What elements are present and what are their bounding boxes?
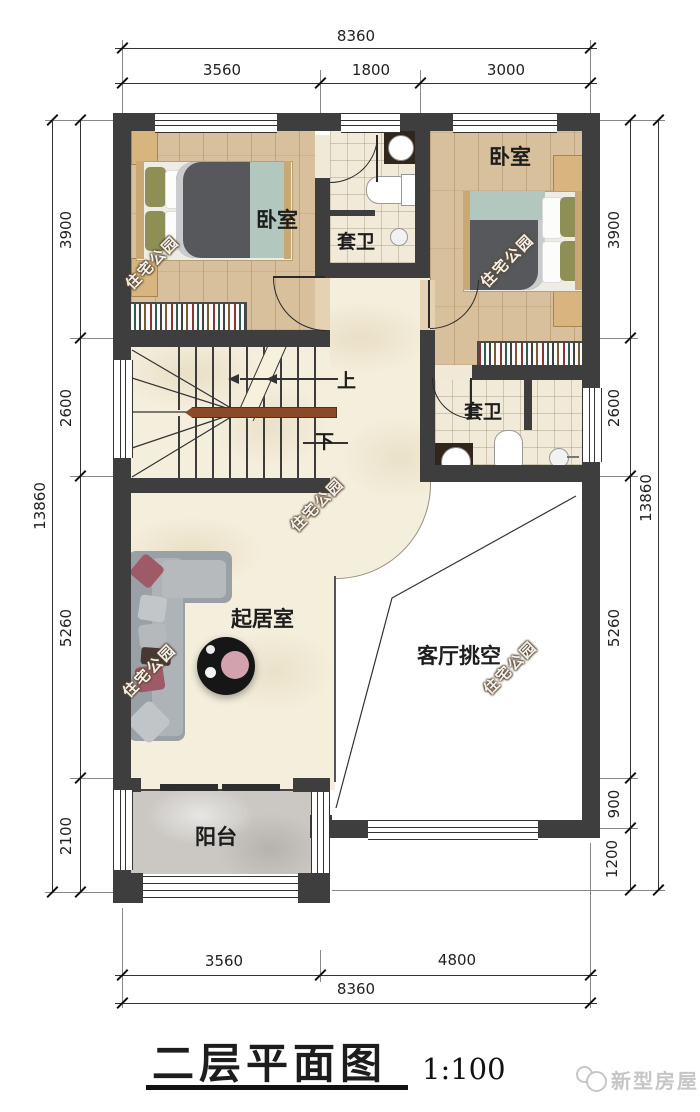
window-bedroom-left xyxy=(155,113,277,133)
door-leaf xyxy=(376,135,378,182)
pillow xyxy=(145,167,166,207)
bed-duvet xyxy=(176,162,250,258)
bath-partition-wall xyxy=(330,210,375,216)
shower-handle-icon xyxy=(567,456,579,458)
dim-right-seg-5: 1200 xyxy=(603,831,621,887)
dim-right-seg-3: 5260 xyxy=(605,600,623,656)
wall-right xyxy=(582,113,600,838)
room-label-void: 客厅挑空 xyxy=(417,640,501,670)
dim-line xyxy=(658,120,659,890)
dim-left-seg-2: 2600 xyxy=(57,380,75,436)
extension-line xyxy=(320,950,321,982)
dim-top-overall: 8360 xyxy=(330,27,382,45)
dim-top-seg-2: 1800 xyxy=(346,61,396,79)
door-leaf xyxy=(428,280,430,328)
wall-shower-partition xyxy=(524,380,532,430)
stair-up-arrow-line xyxy=(240,378,338,380)
dim-right-overall: 13860 xyxy=(637,470,655,526)
sofa-cushions xyxy=(162,560,226,598)
pillow xyxy=(137,594,167,623)
dim-line xyxy=(115,83,597,84)
sink-basin xyxy=(388,135,414,161)
nightstand xyxy=(131,129,158,165)
dim-top-seg-1: 3560 xyxy=(190,61,254,79)
window-stairs xyxy=(113,360,133,458)
dim-top-seg-3: 3000 xyxy=(479,61,533,79)
nightstand xyxy=(553,155,584,193)
bed-headboard xyxy=(575,191,582,290)
dim-right-seg-2: 2600 xyxy=(605,380,623,436)
room-label-bath-top: 套卫 xyxy=(337,227,375,254)
threshold-bath-top xyxy=(315,135,330,178)
window-bedroom-right xyxy=(453,113,557,133)
window-balcony-right xyxy=(311,792,330,873)
title-underline xyxy=(146,1085,408,1090)
brand-name: 新型房屋 xyxy=(611,1065,699,1094)
window-balcony-left xyxy=(113,790,133,870)
dim-right-seg-1: 3900 xyxy=(605,202,623,258)
stair-arrowhead-icon xyxy=(228,374,239,384)
extension-line xyxy=(590,843,591,1008)
wall-stairs-top xyxy=(113,330,330,347)
stair-handrail xyxy=(185,407,337,418)
nightstand xyxy=(553,290,584,327)
extension-line xyxy=(122,908,123,1008)
extension-line xyxy=(600,338,638,339)
dim-line xyxy=(115,975,597,976)
floor-drain-icon xyxy=(390,228,408,246)
stair-up-label: 上 xyxy=(337,366,356,393)
room-label-bath-right: 套卫 xyxy=(464,397,502,424)
balcony-corner-post xyxy=(298,873,330,903)
table-decor xyxy=(205,667,216,678)
window-bath-top xyxy=(341,113,400,133)
table-flowers xyxy=(221,651,249,679)
room-label-balcony: 阳台 xyxy=(195,821,237,851)
bed-footboard xyxy=(463,191,470,290)
balcony-railing xyxy=(143,876,298,898)
bed-runner xyxy=(470,191,545,220)
wall-bath-top-bottom xyxy=(315,263,420,278)
sliding-door-panel xyxy=(222,784,280,791)
wall-bath-bedroom-right xyxy=(415,131,430,278)
brand-logo-icon xyxy=(586,1071,607,1092)
stair-down-label: 下 xyxy=(315,427,334,454)
dim-line xyxy=(115,1003,597,1004)
window-void-bottom xyxy=(368,820,538,840)
dim-line xyxy=(115,48,597,49)
toilet xyxy=(366,176,404,204)
room-label-bedroom-right: 卧室 xyxy=(489,141,531,171)
wall-bedroom-right-bottom xyxy=(472,365,583,380)
extension-line xyxy=(600,476,638,477)
drawing-scale: 1:100 xyxy=(422,1052,506,1086)
bed-headboard xyxy=(136,161,144,259)
wall-stairs-bottom xyxy=(113,478,330,493)
dim-bottom-seg-1: 3560 xyxy=(195,952,253,970)
dim-left-seg-4: 2100 xyxy=(57,808,75,864)
extension-line xyxy=(122,40,123,113)
balcony-corner-post xyxy=(113,873,143,903)
wall-bedroom-right-lower xyxy=(420,330,435,365)
extension-line xyxy=(420,70,421,113)
window-bath-right xyxy=(582,388,602,462)
page-title: 二层平面图 xyxy=(152,1030,387,1091)
toilet xyxy=(494,430,523,468)
room-label-bedroom-left: 卧室 xyxy=(256,204,298,234)
room-label-living: 起居室 xyxy=(231,603,294,633)
wall-balcony-stub-right xyxy=(293,778,330,792)
dim-bottom-seg-2: 4800 xyxy=(428,951,486,969)
dim-left-seg-1: 3900 xyxy=(57,202,75,258)
pillow xyxy=(542,197,562,239)
dim-line xyxy=(52,120,53,892)
dim-bottom-overall: 8360 xyxy=(330,980,382,998)
pillow xyxy=(542,241,562,283)
table-decor xyxy=(206,645,215,654)
dim-left-seg-3: 5260 xyxy=(57,600,75,656)
sliding-door-panel xyxy=(160,784,218,791)
door-leaf xyxy=(273,276,325,278)
extension-line xyxy=(320,70,321,113)
stair-arrowhead-icon xyxy=(266,374,277,384)
extension-line xyxy=(332,890,665,891)
wall-left xyxy=(113,113,131,875)
extension-line xyxy=(590,40,591,113)
floor-plan-page: 上 下 xyxy=(0,0,700,1112)
wall-bath-right-bottom xyxy=(420,465,583,482)
dim-right-seg-4: 900 xyxy=(605,776,623,832)
dim-left-overall: 13860 xyxy=(31,478,49,534)
